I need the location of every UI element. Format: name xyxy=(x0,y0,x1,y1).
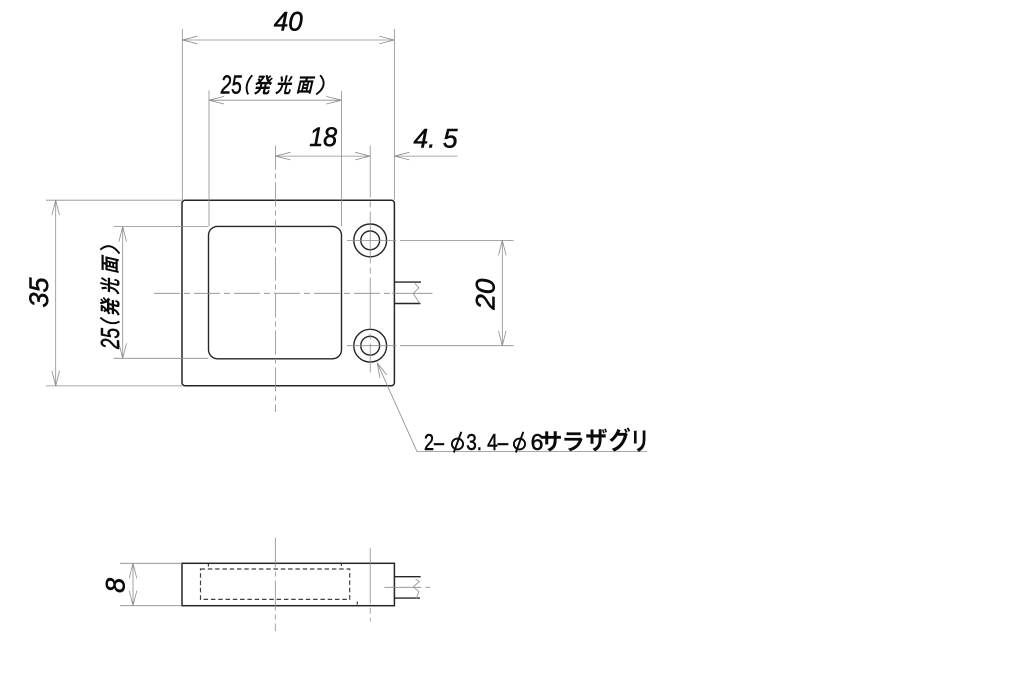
svg-text:2–: 2– xyxy=(424,429,444,455)
svg-text:3. 4–: 3. 4– xyxy=(466,429,508,455)
svg-text:25: 25 xyxy=(95,328,125,350)
svg-text:20: 20 xyxy=(470,279,500,311)
svg-text:8: 8 xyxy=(101,578,131,593)
svg-text:18: 18 xyxy=(309,122,337,152)
svg-text:4. 5: 4. 5 xyxy=(414,123,459,153)
svg-text:40: 40 xyxy=(274,7,303,37)
svg-text:25: 25 xyxy=(220,70,242,100)
svg-text:35: 35 xyxy=(24,277,54,308)
svg-text:6: 6 xyxy=(531,429,544,455)
